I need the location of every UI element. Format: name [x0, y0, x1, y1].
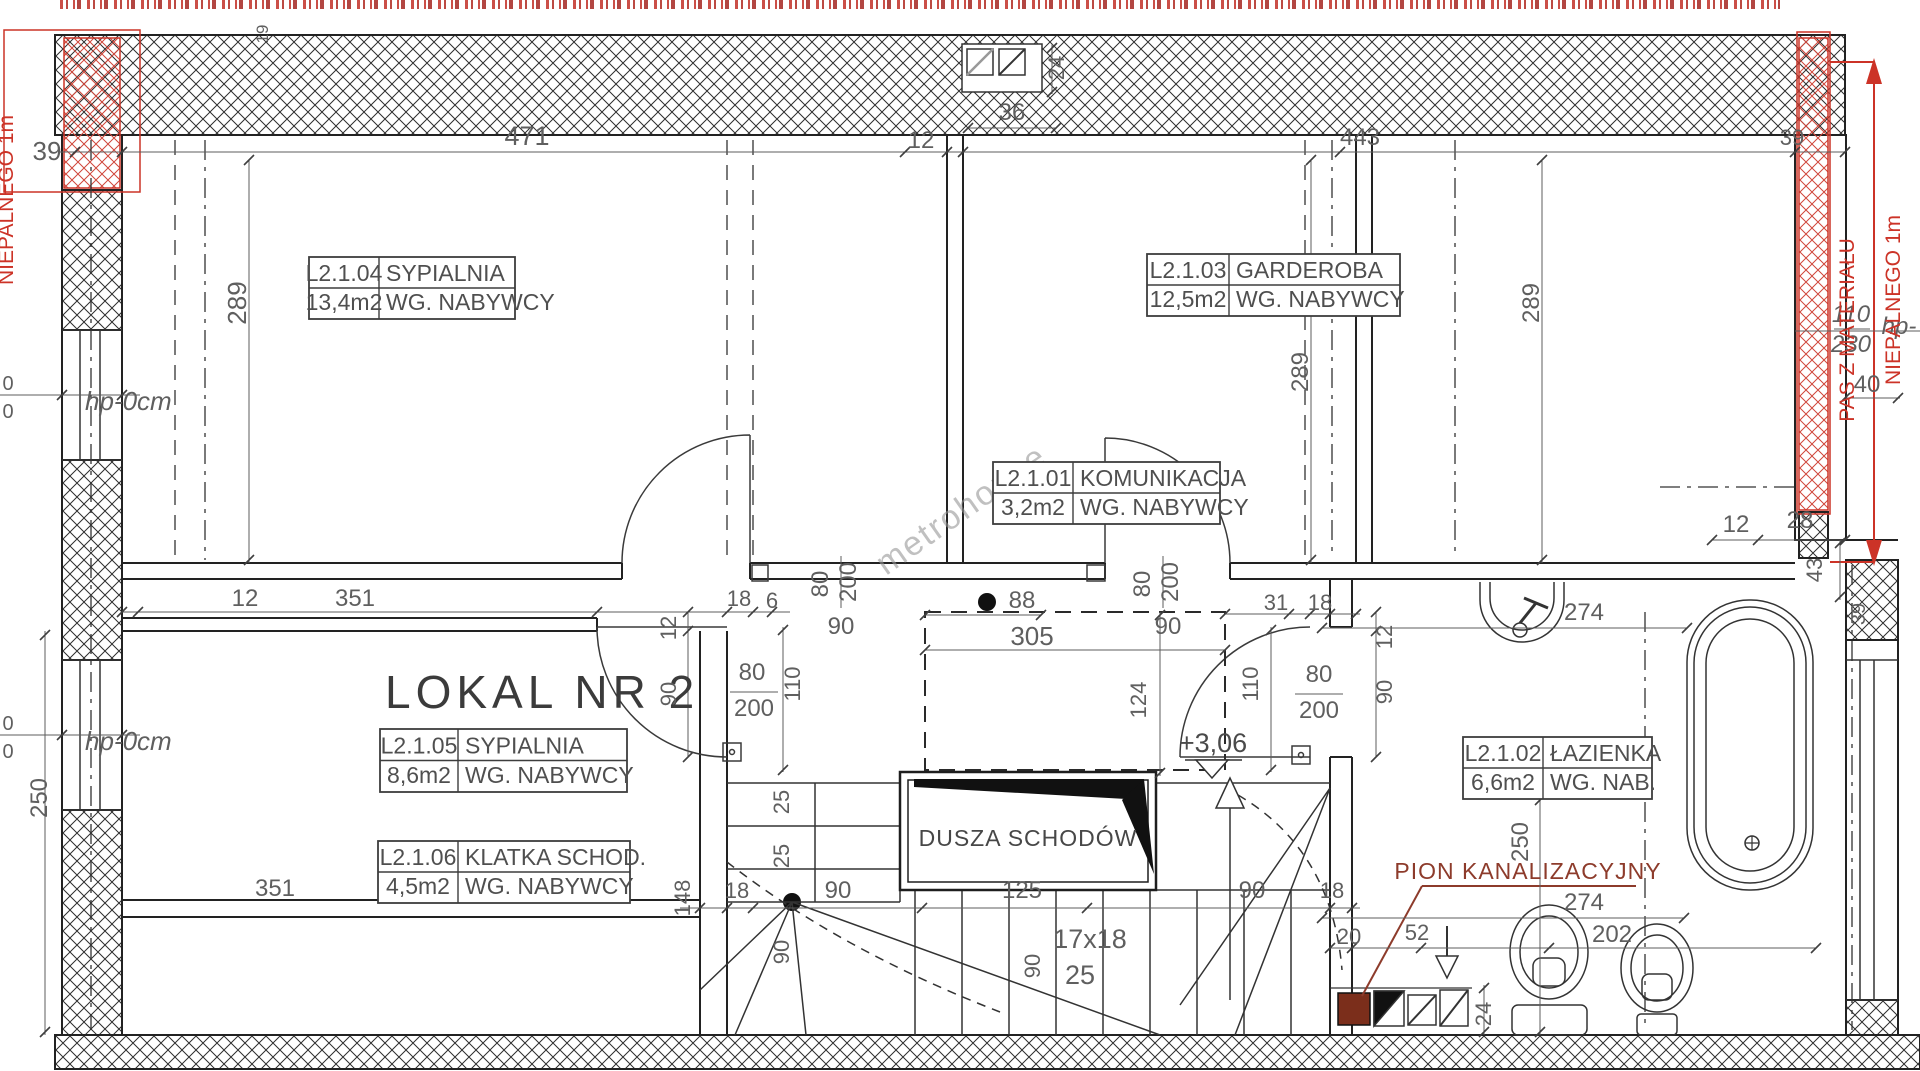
dimension-label: 289 — [222, 281, 252, 324]
dimension-label: 250 — [26, 778, 53, 818]
dimension-label: 200 — [835, 562, 862, 602]
dimension-label: 80 — [807, 571, 834, 598]
stair-void-label: DUSZA SCHODÓW — [919, 825, 1138, 851]
dimension-label: 90 — [828, 613, 855, 640]
room-note: WG. NAB. — [1550, 769, 1656, 795]
dimension-label: 12 — [656, 616, 681, 640]
floor-plan-canvas: DUSZA SCHODÓW — [0, 0, 1920, 1071]
room-name: KOMUNIKACJA — [1080, 465, 1247, 491]
room-area: 3,2m2 — [1001, 494, 1065, 520]
room-name: GARDEROBA — [1236, 257, 1384, 283]
dimension-label: 351 — [335, 585, 375, 612]
room-name: SYPIALNIA — [465, 733, 585, 759]
dimension-label: 471 — [504, 121, 549, 151]
level-mark-icon — [1185, 760, 1242, 778]
door-arc — [622, 435, 750, 563]
room-id: L2.1.01 — [995, 465, 1072, 491]
room-id: L2.1.05 — [381, 733, 458, 759]
dimension-label: 90 — [1155, 613, 1182, 640]
dimension-label: 39 — [1848, 603, 1870, 625]
dimension-label: 443 — [1340, 124, 1380, 151]
dimension-label: 289 — [1518, 283, 1545, 323]
room-name: ŁAZIENKA — [1550, 740, 1662, 766]
dimension-label: 24 — [1471, 1002, 1496, 1026]
dimension-label: 43 — [1802, 558, 1827, 582]
vent-shaft-icon — [962, 44, 1042, 92]
dimension-label: 24 — [1044, 56, 1069, 80]
room-note: WG. NABYWCY — [386, 289, 555, 315]
bathtub-icon — [1687, 600, 1813, 890]
room-label-box: L2.1.026,6m2ŁAZIENKAWG. NAB. — [1463, 737, 1662, 799]
dimension-label: 90 — [825, 877, 852, 904]
room-label-box: L2.1.064,5m2KLATKA SCHOD.WG. NABYWCY — [378, 841, 646, 903]
dimension-label: 25 — [769, 790, 794, 814]
dimension-label: 274 — [1564, 889, 1604, 916]
dimension-label: 80 — [1306, 661, 1333, 688]
fireproof-band-note: NIEPALNEGO 1m — [1882, 215, 1905, 385]
dimension-label: 289 — [1287, 352, 1314, 392]
dimension-label: 90 — [1372, 680, 1397, 704]
shaft-row — [1330, 988, 1472, 1026]
dimension-label: 0 — [2, 713, 13, 735]
floor-plan-drawing: DUSZA SCHODÓW — [0, 0, 1920, 1071]
room-name: KLATKA SCHOD. — [465, 844, 646, 870]
dimension-label: 124 — [1126, 682, 1151, 719]
winder-treads — [1180, 788, 1330, 1035]
dimension-label: 25 — [769, 844, 794, 868]
dimension-label: 274 — [1564, 599, 1604, 626]
room-note: WG. NABYWCY — [1080, 494, 1249, 520]
toilet-icon — [1510, 905, 1588, 1035]
dimension-label: 19 — [253, 25, 272, 44]
dimension-label: 200 — [734, 695, 774, 722]
dimension-label: 36 — [999, 99, 1026, 126]
dimension-label: 148 — [670, 880, 695, 917]
sill-height-label: hp-0cm — [85, 386, 172, 416]
dimension-label: 200 — [1157, 562, 1184, 602]
dimension-label: 12 — [908, 127, 935, 154]
vent-arrow-icon — [1436, 926, 1458, 978]
fireproof-band-note: PAS Z MATERIAŁU — [1836, 238, 1859, 422]
room-note: WG. NABYWCY — [465, 762, 634, 788]
dimension-label: 90 — [656, 682, 681, 706]
dimension-label: 125 — [1002, 877, 1042, 904]
stair-void-box: DUSZA SCHODÓW — [900, 772, 1156, 890]
dimension-label: 80 — [1129, 571, 1156, 598]
dimension-label: 20 — [1337, 924, 1361, 949]
dimension-label: 39 — [33, 136, 62, 166]
exterior-walls — [55, 35, 1920, 1069]
room-label-box: L2.1.058,6m2SYPIALNIAWG. NABYWCY — [380, 729, 634, 792]
dimension-label: 18 — [1320, 878, 1344, 903]
room-area: 13,4m2 — [306, 289, 383, 315]
dimension-label: 305 — [1010, 621, 1053, 651]
room-area: 8,6m2 — [387, 762, 451, 788]
level-mark: +3,06 — [1179, 728, 1247, 758]
room-label-box: L2.1.013,2m2KOMUNIKACJAWG. NABYWCY — [993, 462, 1249, 524]
dimension-label: 88 — [1009, 587, 1036, 614]
dimension-label: 0 — [2, 741, 13, 763]
dimension-label: 18 — [725, 878, 749, 903]
room-area: 12,5m2 — [1150, 286, 1227, 312]
stair-tread-label: 25 — [1065, 960, 1095, 990]
dimension-label: 202 — [1592, 921, 1632, 948]
room-id: L2.1.06 — [380, 844, 457, 870]
room-area: 4,5m2 — [386, 873, 450, 899]
room-label-box: L2.1.0312,5m2GARDEROBAWG. NABYWCY — [1147, 254, 1405, 316]
sewage-stack-icon — [1338, 993, 1370, 1025]
dimension-label: 0 — [2, 401, 13, 423]
room-id: L2.1.04 — [306, 260, 383, 286]
dimension-label: 6 — [766, 588, 778, 613]
dimension-label: 80 — [739, 659, 766, 686]
dimension-label: 250 — [1507, 822, 1534, 862]
dimension-label: 90 — [769, 940, 794, 964]
dimension-label: 200 — [1299, 697, 1339, 724]
dimension-label: 110 — [1238, 666, 1263, 701]
dimension-label: 12 — [1372, 625, 1397, 649]
dimension-label: 12 — [232, 585, 259, 612]
unit-title: LOKAL NR 2 — [385, 666, 699, 718]
dimension-label: 90 — [1020, 954, 1045, 978]
dimension-label: 0 — [2, 373, 13, 395]
dimension-label: 90 — [1239, 877, 1266, 904]
room-note: WG. NABYWCY — [465, 873, 634, 899]
dimension-label: 39 — [1780, 125, 1804, 150]
room-area: 6,6m2 — [1471, 769, 1535, 795]
room-label-box: L2.1.0413,4m2SYPIALNIAWG. NABYWCY — [306, 257, 555, 319]
dimension-label: 12 — [1723, 511, 1750, 538]
dimension-label: 28 — [1787, 507, 1814, 534]
fireproof-band-note: NIEPALNEGO 1m — [0, 115, 18, 285]
room-id: L2.1.02 — [1465, 740, 1542, 766]
stair-count-label: 17x18 — [1053, 924, 1127, 954]
dimension-label: 52 — [1405, 920, 1429, 945]
dimension-label: 351 — [255, 875, 295, 902]
room-note: WG. NABYWCY — [1236, 286, 1405, 312]
dimension-label: 110 — [780, 666, 805, 701]
dimension-label: 18 — [727, 586, 751, 611]
sill-height-label: hp-0cm — [85, 726, 172, 756]
dimension-label: 31 — [1264, 590, 1288, 615]
dimension-label: 18 — [1308, 590, 1332, 615]
room-id: L2.1.03 — [1150, 257, 1227, 283]
ceiling-point — [978, 593, 996, 611]
sink-icon — [1480, 582, 1564, 642]
room-name: SYPIALNIA — [386, 260, 506, 286]
